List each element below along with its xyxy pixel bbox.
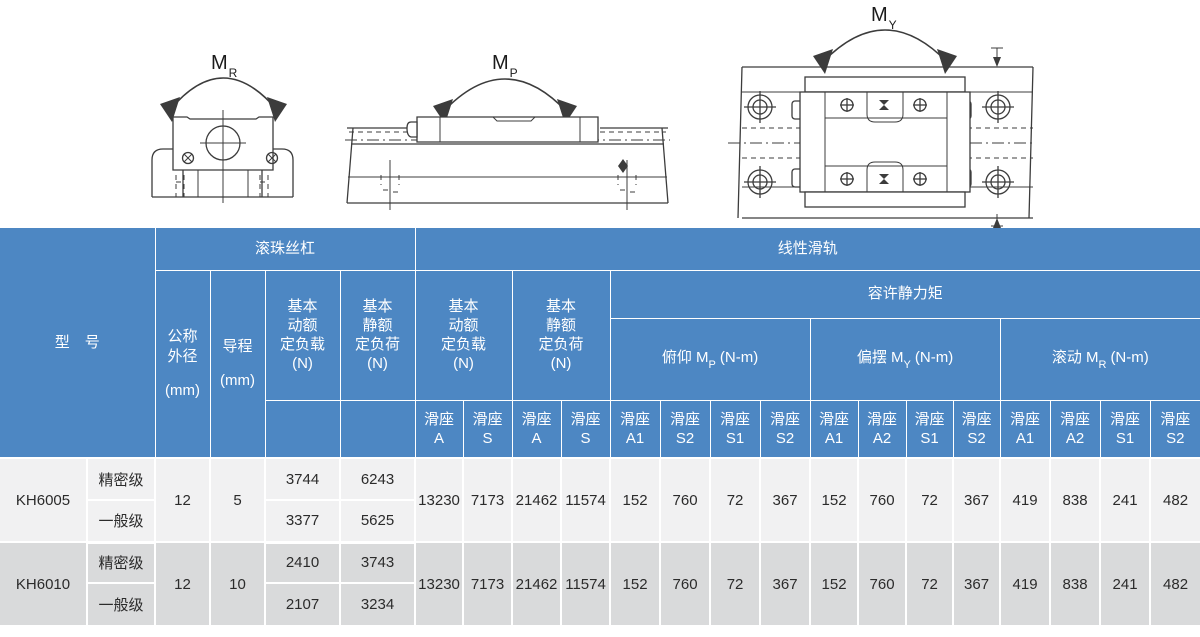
- col-header-seat-mr-4: 滑座S2: [1150, 400, 1200, 458]
- moment-diagrams-section: MR MP MY: [0, 0, 1200, 228]
- bs-dyn-cell: 3744: [265, 458, 340, 500]
- col-header-seat-stat-a: 滑座A: [512, 400, 561, 458]
- col-group-allowable-static-moment: 容许静力矩: [610, 270, 1200, 318]
- lg-value-cell: 72: [710, 542, 760, 625]
- od-cell: 12: [155, 458, 210, 542]
- lg-value-cell: 419: [1000, 458, 1050, 542]
- col-group-yaw-moment: 偏摆 MY(N-m): [810, 318, 1000, 400]
- grade-cell: 一般级: [87, 583, 155, 625]
- lg-value-cell: 760: [660, 542, 710, 625]
- col-group-roll-moment: 滚动 MR(N-m): [1000, 318, 1200, 400]
- lg-value-cell: 13230: [415, 542, 463, 625]
- spec-sheet-page: { "colors": { "header_blue": "#4d87c3", …: [0, 0, 1200, 637]
- grade-cell: 精密级: [87, 458, 155, 500]
- lg-value-cell: 838: [1050, 458, 1100, 542]
- lg-value-cell: 367: [953, 542, 1000, 625]
- col-header-bs-dynamic-load: 基本 动额 定负载 (N): [265, 270, 340, 400]
- bs-stat-cell: 6243: [340, 458, 415, 500]
- spec-table-body: KH6005 精密级 12 5 3744 6243 13230 7173 214…: [0, 458, 1200, 625]
- col-header-nominal-od: 公称 外径 (mm): [155, 270, 210, 458]
- lg-value-cell: 152: [610, 542, 660, 625]
- bs-dyn-cell: 2107: [265, 583, 340, 625]
- col-header-seat-mp-1: 滑座A1: [610, 400, 660, 458]
- col-header-bs-static-load: 基本 静额 定负荷 (N): [340, 270, 415, 400]
- col-header-seat-mp-3: 滑座S1: [710, 400, 760, 458]
- lg-value-cell: 152: [810, 458, 858, 542]
- lg-value-cell: 72: [906, 458, 953, 542]
- col-group-linear-guide: 线性滑轨: [415, 228, 1200, 270]
- col-header-seat-mr-3: 滑座S1: [1100, 400, 1150, 458]
- col-header-seat-mr-2: 滑座A2: [1050, 400, 1100, 458]
- bs-stat-cell: 5625: [340, 500, 415, 542]
- lg-value-cell: 72: [710, 458, 760, 542]
- lg-value-cell: 11574: [561, 458, 610, 542]
- grade-cell: 精密级: [87, 542, 155, 583]
- col-header-model: 型 号: [0, 228, 155, 458]
- col-group-pitch-moment: 俯仰 MP(N-m): [610, 318, 810, 400]
- lg-value-cell: 241: [1100, 458, 1150, 542]
- col-header-blank: [265, 400, 340, 458]
- table-row: KH6010 精密级 12 10 2410 3743 13230 7173 21…: [0, 542, 1200, 583]
- od-cell: 12: [155, 542, 210, 625]
- lg-value-cell: 367: [760, 542, 810, 625]
- front-view-roll-diagram: [150, 70, 310, 210]
- lg-value-cell: 482: [1150, 542, 1200, 625]
- col-header-seat-my-4: 滑座S2: [953, 400, 1000, 458]
- col-header-lg-static-load: 基本 静额 定负荷 (N): [512, 270, 610, 400]
- lg-value-cell: 367: [953, 458, 1000, 542]
- lg-value-cell: 482: [1150, 458, 1200, 542]
- lg-value-cell: 241: [1100, 542, 1150, 625]
- col-header-seat-mp-2: 滑座S2: [660, 400, 710, 458]
- lg-value-cell: 760: [858, 542, 906, 625]
- model-cell: KH6005: [0, 458, 87, 542]
- col-header-seat-mp-4: 滑座S2: [760, 400, 810, 458]
- lg-value-cell: 72: [906, 542, 953, 625]
- col-header-seat-dyn-a: 滑座A: [415, 400, 463, 458]
- col-header-seat-dyn-s: 滑座S: [463, 400, 512, 458]
- lg-value-cell: 152: [810, 542, 858, 625]
- model-cell: KH6010: [0, 542, 87, 625]
- lg-value-cell: 21462: [512, 542, 561, 625]
- col-header-seat-mr-1: 滑座A1: [1000, 400, 1050, 458]
- spec-table-header: 型 号 滚珠丝杠 线性滑轨 公称 外径 (mm) 导程 (mm) 基本 动额 定…: [0, 228, 1200, 458]
- lead-cell: 10: [210, 542, 265, 625]
- lg-value-cell: 838: [1050, 542, 1100, 625]
- lg-value-cell: 11574: [561, 542, 610, 625]
- spec-table: 型 号 滚珠丝杠 线性滑轨 公称 外径 (mm) 导程 (mm) 基本 动额 定…: [0, 228, 1200, 625]
- col-header-seat-my-1: 滑座A1: [810, 400, 858, 458]
- lg-value-cell: 152: [610, 458, 660, 542]
- lg-value-cell: 760: [858, 458, 906, 542]
- lg-value-cell: 21462: [512, 458, 561, 542]
- lg-value-cell: 7173: [463, 458, 512, 542]
- lg-value-cell: 367: [760, 458, 810, 542]
- bs-stat-cell: 3743: [340, 542, 415, 583]
- lg-value-cell: 419: [1000, 542, 1050, 625]
- lg-value-cell: 760: [660, 458, 710, 542]
- col-header-seat-stat-s: 滑座S: [561, 400, 610, 458]
- side-view-pitch-diagram: [345, 70, 670, 215]
- col-header-lead: 导程 (mm): [210, 270, 265, 458]
- lead-cell: 5: [210, 458, 265, 542]
- bs-stat-cell: 3234: [340, 583, 415, 625]
- grade-cell: 一般级: [87, 500, 155, 542]
- col-group-ball-screw: 滚珠丝杠: [155, 228, 415, 270]
- col-header-seat-my-2: 滑座A2: [858, 400, 906, 458]
- bs-dyn-cell: 2410: [265, 542, 340, 583]
- table-row: KH6005 精密级 12 5 3744 6243 13230 7173 214…: [0, 458, 1200, 500]
- bs-dyn-cell: 3377: [265, 500, 340, 542]
- lg-value-cell: 13230: [415, 458, 463, 542]
- lg-value-cell: 7173: [463, 542, 512, 625]
- col-header-blank: [340, 400, 415, 458]
- col-header-seat-my-3: 滑座S1: [906, 400, 953, 458]
- top-view-yaw-diagram: [728, 2, 1036, 228]
- col-header-lg-dynamic-load: 基本 动额 定负载 (N): [415, 270, 512, 400]
